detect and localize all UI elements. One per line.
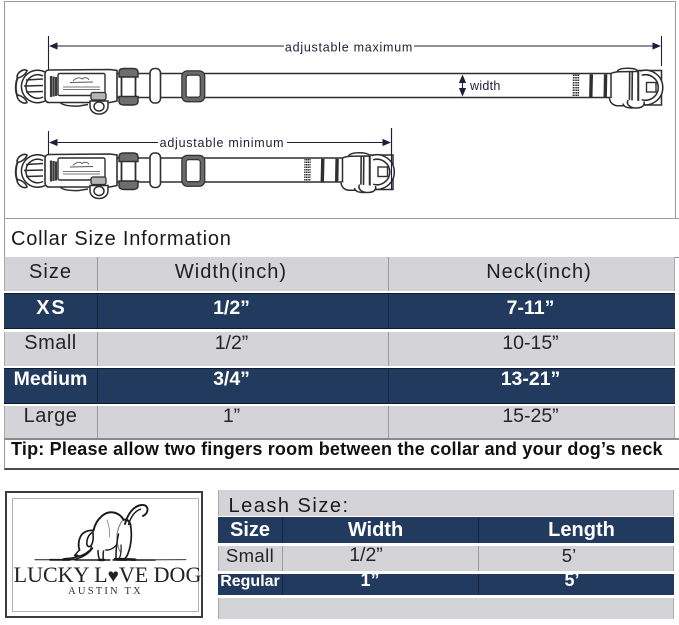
svg-text:adjustable maximum: adjustable maximum xyxy=(285,41,413,55)
svg-text:width: width xyxy=(469,79,501,93)
svg-text:adjustable minimum: adjustable minimum xyxy=(160,136,285,150)
